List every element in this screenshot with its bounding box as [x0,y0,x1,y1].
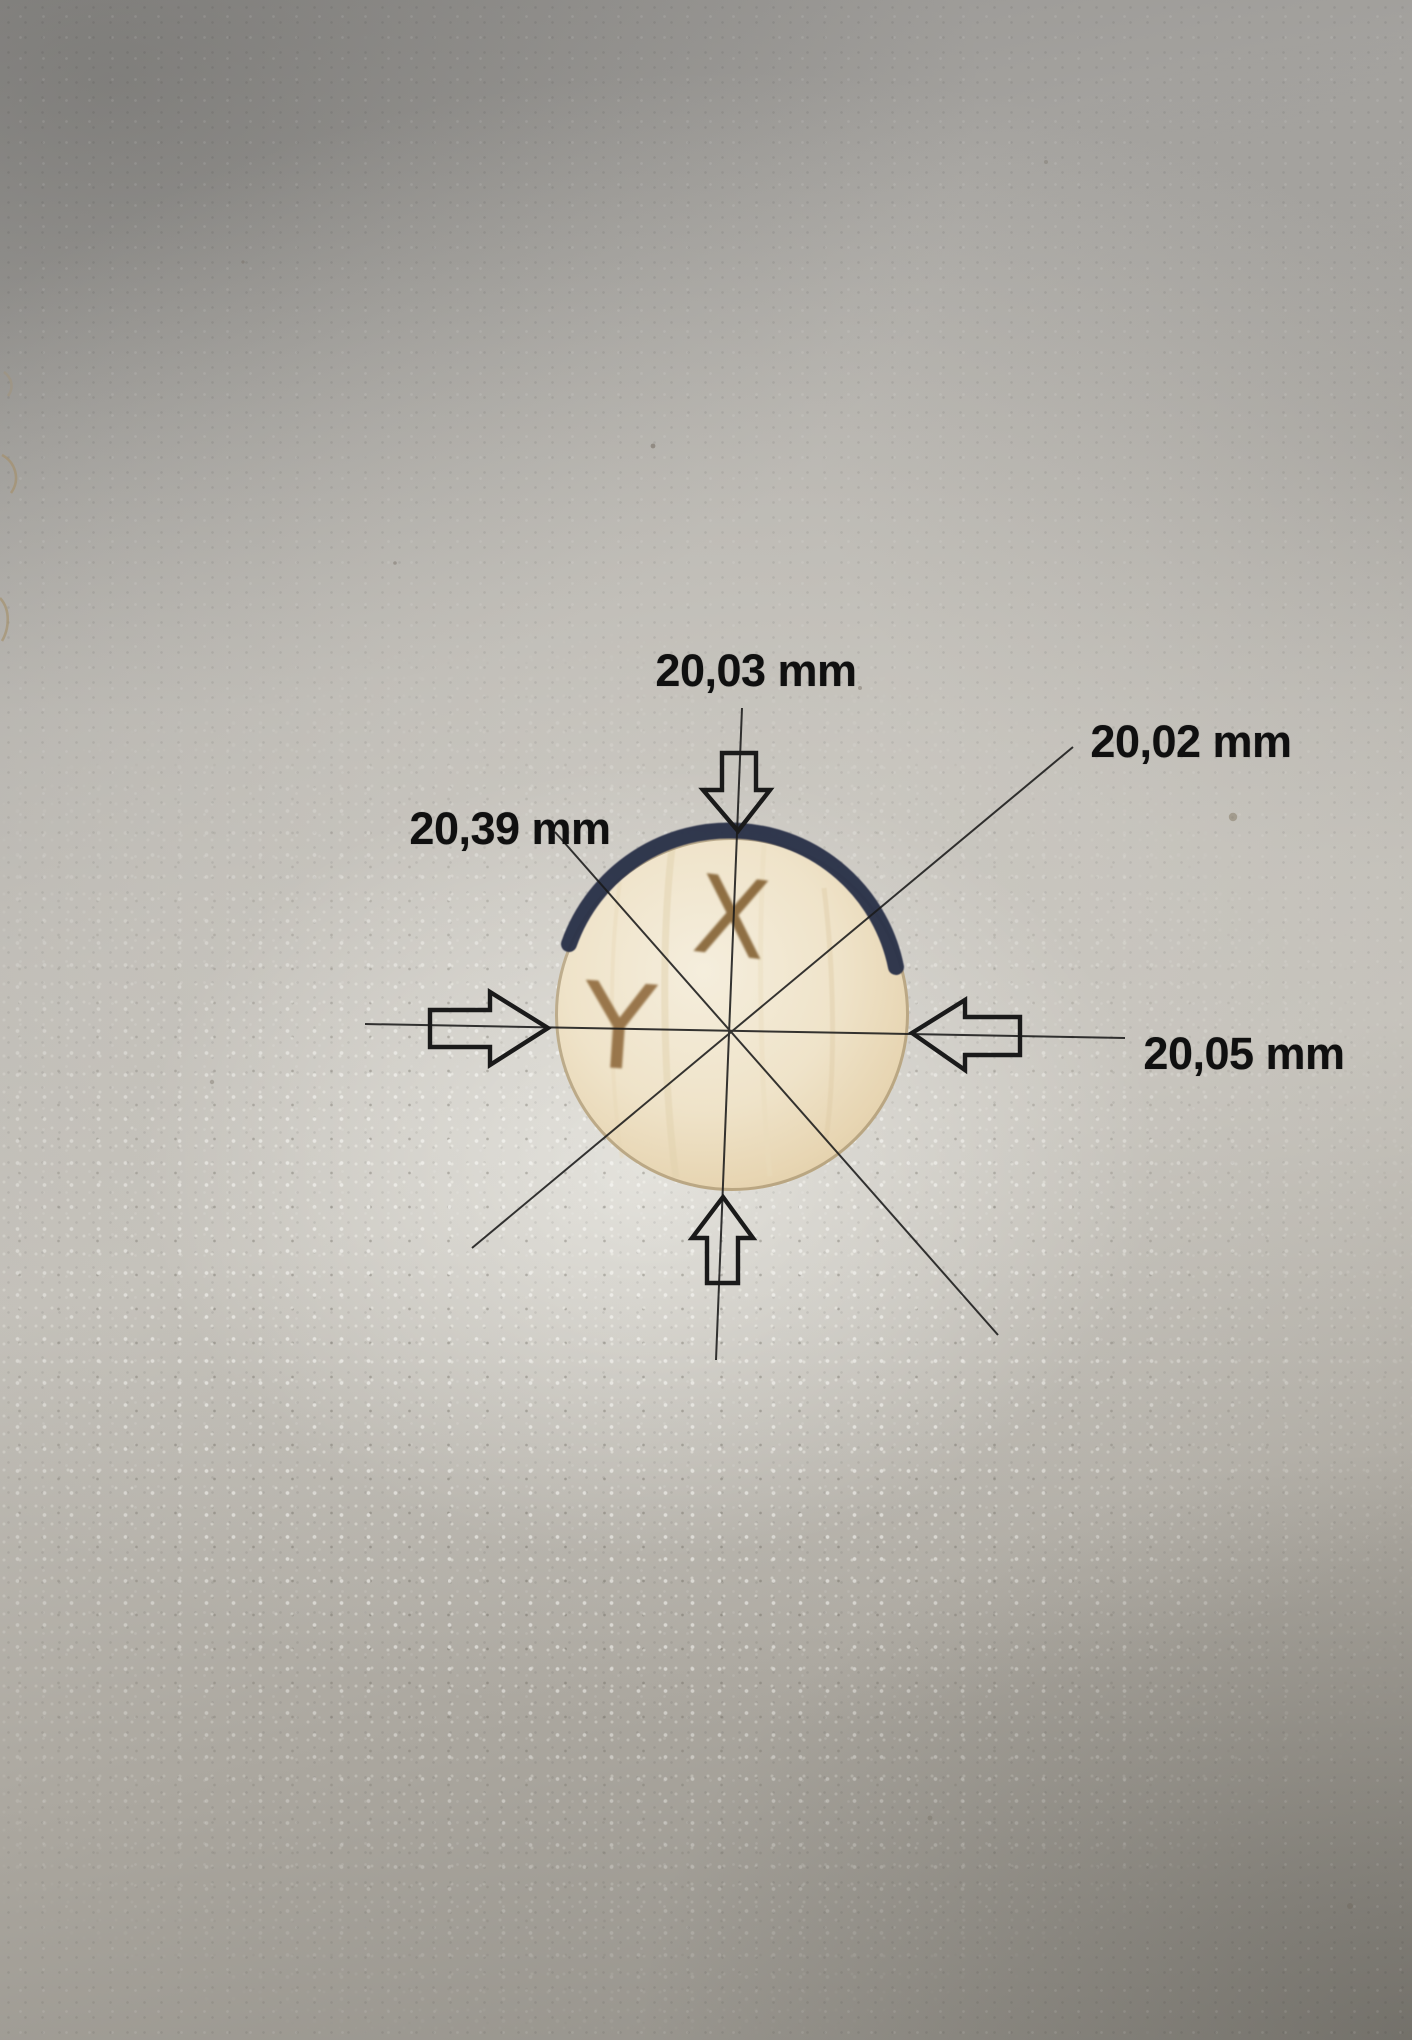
speck [1229,813,1237,821]
speck [241,260,244,263]
fiber [0,598,8,641]
fiber [2,455,16,493]
measurement-label-diagonal-nw: 20,39 mm [409,803,610,855]
fiber [4,372,11,396]
right-pointing-arrow [430,992,548,1065]
wooden-disc: X Y [555,831,909,1191]
measurement-label-top: 20,03 mm [655,645,856,697]
speck [651,444,656,449]
edge-fibers [0,372,16,641]
down-arrow [703,753,770,831]
speck [1044,160,1048,164]
speck [210,1080,214,1084]
speck [928,1816,933,1821]
measurement-label-horizontal: 20,05 mm [1143,1028,1344,1080]
speck [393,561,397,565]
photo-overlay-graphics: X Y [0,0,1412,2040]
disc-letter-y: Y [577,956,660,1099]
measurement-label-diagonal-ne: 20,02 mm [1090,716,1291,768]
photo-scene: X Y 20,03 mm 20,02 mm 20,39 mm 20,05 mm [0,0,1412,2040]
speck [1347,1903,1353,1909]
speck [858,686,862,690]
